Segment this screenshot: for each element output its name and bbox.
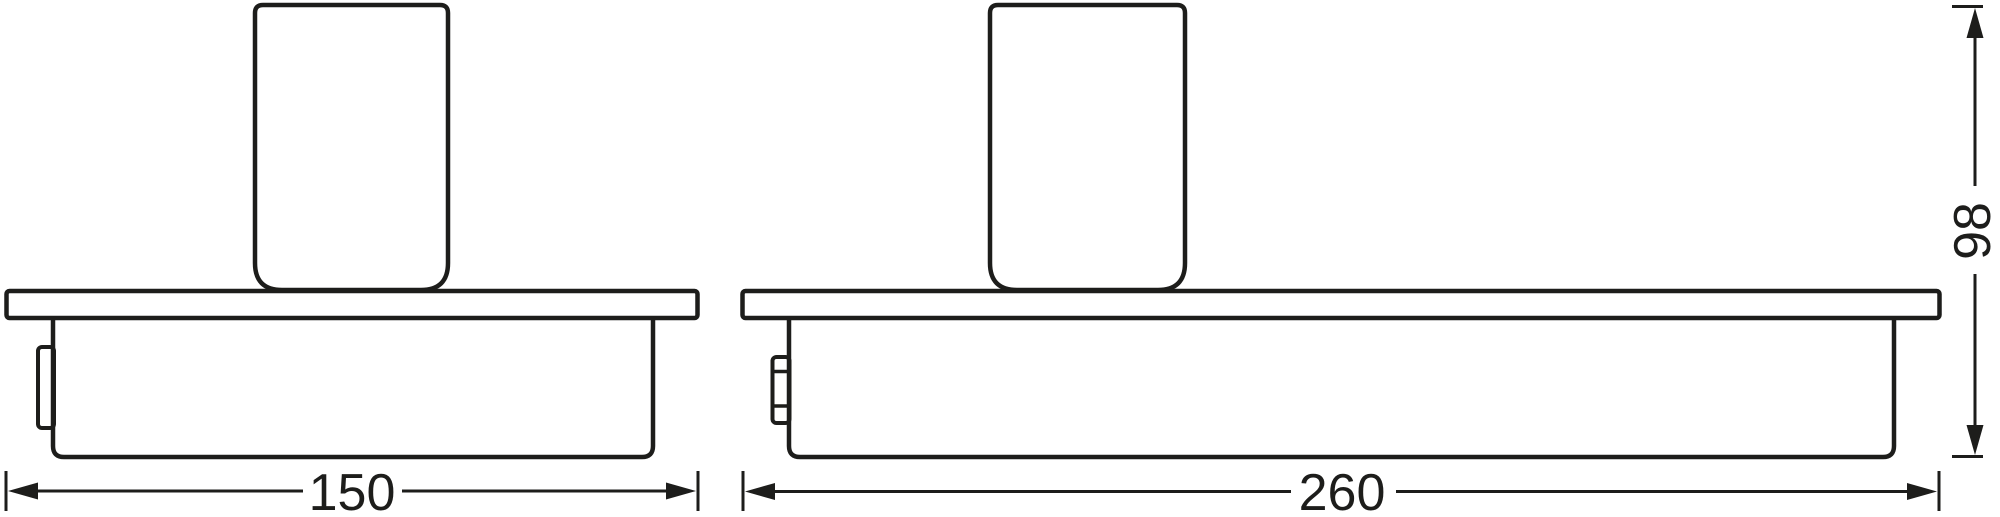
- tumbler-large: [990, 5, 1185, 290]
- arrowhead-down-icon: [1967, 425, 1984, 455]
- dimension-label-width-large: 260: [1299, 464, 1386, 517]
- arrowhead-right-icon: [1907, 483, 1937, 500]
- dimension-height: 98: [1944, 7, 2000, 457]
- body-small: [53, 318, 653, 457]
- arrowhead-right-icon: [666, 483, 696, 500]
- body-large: [789, 318, 1894, 457]
- dimension-width-large: 260: [743, 464, 1939, 517]
- arrowhead-left-icon: [8, 483, 38, 500]
- fixture-large: [743, 5, 1940, 457]
- dimension-width-small: 150: [6, 464, 698, 517]
- shelf-small: [7, 291, 698, 318]
- drawing-canvas: 150 260 98: [0, 0, 2000, 517]
- dimension-label-height: 98: [1944, 202, 2000, 260]
- arrowhead-up-icon: [1967, 8, 1984, 38]
- shelf-large: [743, 291, 1940, 318]
- dimension-drawing: 150 260 98: [0, 0, 2000, 517]
- dimension-label-width-small: 150: [309, 464, 396, 517]
- fixture-small: [7, 5, 698, 457]
- arrowhead-left-icon: [745, 483, 775, 500]
- tumbler-small: [255, 5, 448, 290]
